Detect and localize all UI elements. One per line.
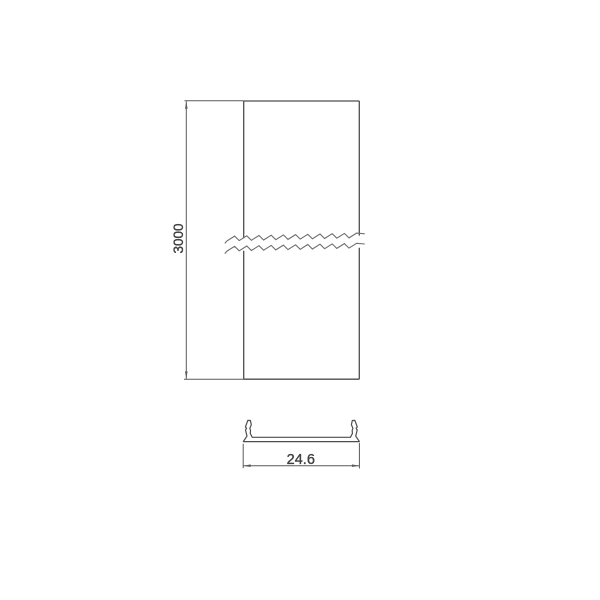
svg-text:3000: 3000: [171, 223, 186, 253]
svg-text:24.6: 24.6: [287, 452, 315, 468]
